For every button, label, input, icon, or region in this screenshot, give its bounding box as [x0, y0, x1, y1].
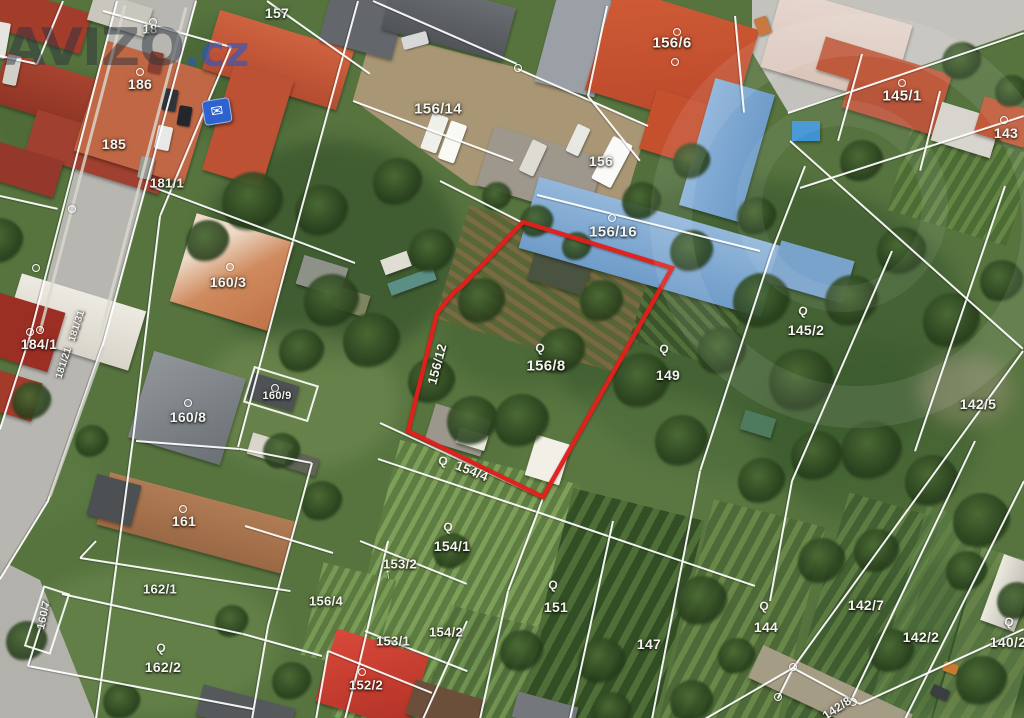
parcel-label: 157 [265, 5, 289, 21]
parcel-label: 142/8 [820, 694, 854, 718]
parcel-label: 161 [172, 513, 196, 529]
parcel-label: 142/2 [903, 629, 940, 645]
parcel-label: 142/7 [848, 597, 885, 613]
parcel-label: 160/3 [210, 274, 247, 290]
parcel-label: 156/12 [424, 342, 449, 386]
parcel-label: 184/1 [21, 336, 58, 352]
parcel-label: 156/16 [589, 224, 637, 241]
parcel-label: 149 [656, 367, 680, 383]
parcel-label: 152/2 [349, 678, 383, 693]
parcel-label: 181/31 [67, 309, 87, 343]
post-office-marker[interactable]: ✉ [201, 97, 233, 126]
parcel-label: 154/2 [429, 625, 463, 640]
parcel-label: 153/2 [383, 557, 417, 572]
parcel-label: 154/1 [434, 538, 471, 554]
parcel-label: 162/1 [143, 582, 177, 597]
parcel-label: 156/8 [526, 358, 565, 375]
parcel-label: 156/4 [309, 594, 343, 609]
parcel-label: 147 [637, 636, 661, 652]
parcel-label: 142/5 [960, 396, 997, 412]
aerial-cadastral-map[interactable]: QQQQQQQQQ↑ 18186185181/1157156/14156156/… [0, 0, 1024, 718]
parcel-label: 151 [544, 599, 568, 615]
parcel-label: 160/7 [35, 600, 53, 631]
parcel-label: 185 [102, 136, 126, 152]
parcel-label: 186 [128, 76, 152, 92]
watermark-ring-inner [736, 100, 948, 312]
parcel-label: 140/2 [990, 634, 1024, 650]
parcel-label: 156/14 [414, 101, 462, 118]
parcel-label: 162/2 [145, 659, 182, 675]
parcel-label: 18 [142, 22, 157, 37]
envelope-icon: ✉ [210, 103, 225, 120]
parcel-label: 156 [589, 153, 613, 169]
parcel-label: 181/1 [150, 176, 184, 191]
parcel-label: 156/6 [652, 35, 691, 52]
parcel-label: 160/8 [170, 409, 207, 425]
parcel-label: 160/9 [262, 390, 291, 402]
parcel-label: 153/1 [376, 634, 410, 649]
parcel-label: 154/4 [453, 458, 490, 485]
parcel-label: 144 [754, 619, 778, 635]
